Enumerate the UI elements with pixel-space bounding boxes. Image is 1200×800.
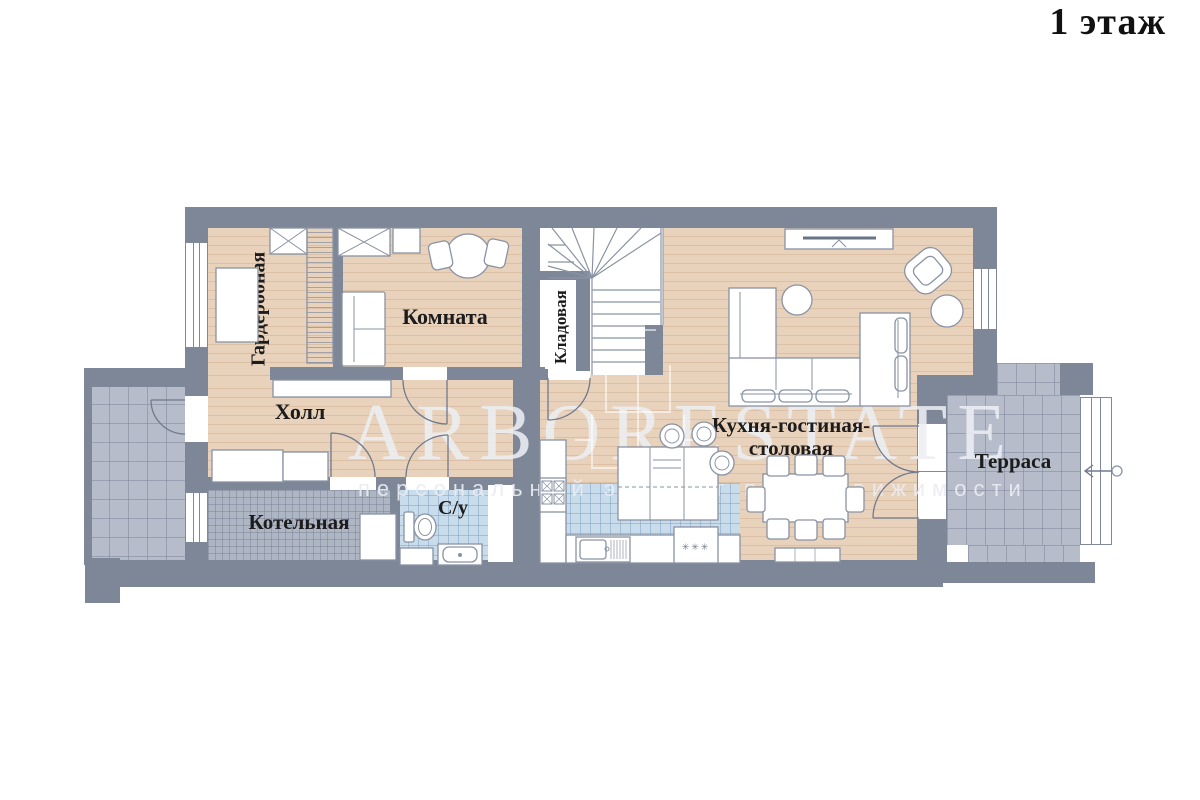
window-kotelnaya (185, 492, 208, 543)
wall-exterior-top (185, 207, 997, 228)
room-terrasa-label: Терраса (953, 450, 1073, 473)
floor-title: 1 этаж (1049, 0, 1166, 44)
room-kotelnaya-label: Котельная (229, 511, 369, 534)
room-holl-label: Холл (240, 400, 360, 424)
room-kladovaya-label: Кладовая (511, 277, 611, 377)
room-komnata-floor (343, 228, 522, 367)
wall-terrace-top-block (1060, 363, 1093, 395)
room-komnata-label: Комната (380, 305, 510, 329)
room-su-label: С/у (413, 498, 493, 520)
wall-stairs-stub (645, 325, 663, 375)
wall-garderobnaya-komnata (333, 228, 343, 367)
komnata-door-opening (403, 367, 447, 380)
room-kitchen-label: Кухня-гостиная- столовая (691, 414, 891, 459)
entry-arrow-origin (1112, 466, 1122, 476)
terrace-floor-lower (968, 545, 1080, 562)
floorplan-page: ARBORESTATE персональный эксперт по недв… (0, 0, 1200, 800)
wall-porch-left (84, 368, 92, 565)
room-garderobnaya-label: Гардеробная (199, 249, 319, 369)
wall-porch-top (85, 368, 185, 387)
porch-floor (90, 385, 185, 562)
window-living (973, 268, 997, 330)
wall-terrace-bottom (940, 562, 1095, 583)
terrace-steps (1080, 397, 1112, 545)
room-living-floor (663, 228, 973, 375)
watermark-brand: ARBORESTATE (348, 388, 1016, 479)
wall-exterior-bottom (110, 560, 943, 587)
entrance-door-opening (185, 396, 208, 442)
